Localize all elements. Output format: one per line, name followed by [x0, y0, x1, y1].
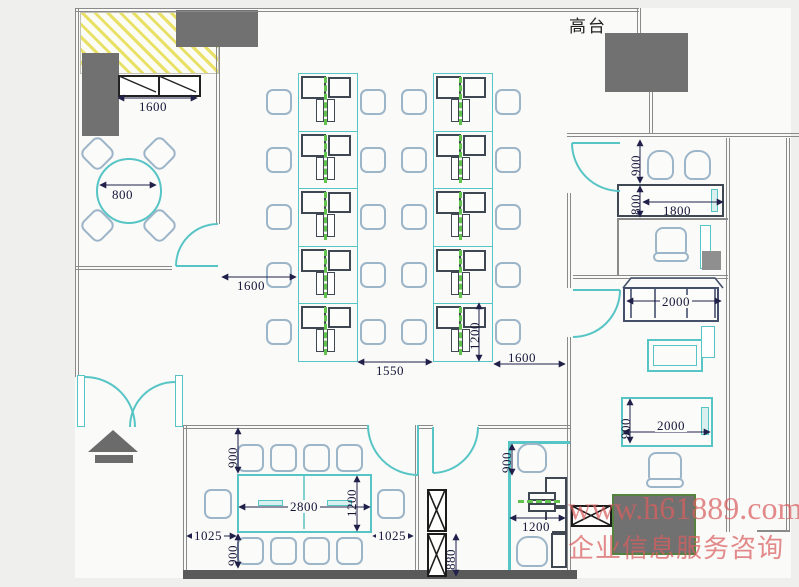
dim-workstation-depth: 1200: [468, 322, 481, 350]
floor-plan: 1600 800 1600 1550 1200 1600 900 800 180…: [0, 0, 799, 587]
monitor: [711, 189, 718, 212]
chair: [401, 147, 427, 173]
chair: [266, 89, 292, 115]
chair: [517, 443, 547, 473]
dim-column: 880: [444, 549, 457, 570]
chair: [360, 147, 386, 173]
chair: [266, 204, 292, 230]
chair: [237, 537, 264, 565]
dim-conf-bottom-chairs: 900: [226, 545, 239, 566]
chair: [495, 89, 521, 115]
dim-office1-desk-depth: 800: [629, 194, 642, 215]
wall-hall-bottom-b: [418, 425, 433, 429]
monitor-pair: [528, 503, 556, 512]
chair: [495, 147, 521, 173]
dim-office1-desk: 1800: [663, 204, 691, 217]
chair: [336, 444, 363, 472]
chair: [495, 262, 521, 288]
dim-small-office-chairs: 900: [500, 452, 513, 473]
dim-workstation-gap: 1550: [376, 364, 404, 377]
chair: [495, 319, 521, 345]
guest-chair: [684, 150, 711, 180]
wall-meeting-room-right: [216, 47, 220, 224]
monitor: [701, 407, 709, 435]
wall-right-inner: [726, 138, 730, 532]
window-mullion: [158, 77, 160, 95]
wall-hall-right-a: [567, 193, 571, 288]
workstation-column-1: [298, 73, 358, 362]
wall-shelf: [701, 326, 715, 358]
workstation-cluster: [434, 132, 492, 190]
wall-left: [75, 8, 79, 377]
workstation-cluster: [299, 189, 357, 247]
workstation-cluster: [299, 132, 357, 190]
wall-office1-bottom: [617, 218, 728, 220]
workstation-cluster: [434, 247, 492, 305]
chair: [495, 204, 521, 230]
dim-conf-table: 2800: [288, 500, 320, 513]
table-power-strip: [258, 500, 283, 506]
office-chair: [655, 227, 687, 258]
dim-exec-desk: 2000: [655, 419, 687, 432]
workstation-cluster: [299, 247, 357, 305]
wall-right-outer: [786, 138, 790, 532]
wall-hall-bottom-c: [478, 425, 570, 429]
chair: [401, 319, 427, 345]
small-desk: [551, 533, 567, 568]
dim-exec-desk-depth: 900: [619, 418, 632, 439]
chair: [360, 89, 386, 115]
wall-meeting-room-bottom: [75, 266, 172, 270]
chair: [303, 444, 330, 472]
workstation-column-2: [433, 73, 493, 362]
entrance-post-left: [77, 375, 85, 427]
dim-conf-top-chairs: 900: [226, 447, 239, 468]
office-chair: [648, 452, 682, 484]
wall-right-rooms-top: [567, 133, 799, 137]
chair: [336, 537, 363, 565]
coffee-table: [647, 339, 703, 372]
dim-conf-right: 1025: [376, 529, 408, 542]
guest-chair: [647, 150, 674, 180]
workstation-cluster: [434, 304, 492, 361]
wall-conf-right: [415, 425, 419, 578]
chair: [516, 536, 548, 567]
workstation-cluster: [299, 74, 357, 132]
column-block-top-left: [176, 10, 258, 47]
dim-workstation-right: 1600: [508, 351, 536, 364]
column-block-left: [82, 53, 119, 136]
wall-hall-bottom-a: [183, 425, 368, 429]
chair: [237, 444, 264, 472]
window-symbol: [118, 75, 201, 97]
wall-office1-left-stub: [617, 218, 619, 275]
chair: [266, 147, 292, 173]
dim-storage-window: 1600: [139, 100, 167, 113]
dim-small-office-desk: 1200: [520, 520, 552, 533]
chair: [204, 489, 232, 519]
chair: [401, 262, 427, 288]
workstation-cluster: [434, 74, 492, 132]
chair: [266, 319, 292, 345]
dim-round-table: 800: [112, 188, 133, 201]
dim-conf-table-depth: 1200: [345, 489, 358, 517]
wall-conf-left: [183, 425, 187, 578]
chair: [377, 489, 405, 519]
column-block-top-right: [605, 33, 688, 92]
workstation-cluster: [299, 304, 357, 361]
dim-sofa: 2000: [660, 295, 692, 308]
platform-label: 高台: [569, 12, 607, 37]
wall-hall-right-b: [567, 337, 571, 430]
chair: [266, 262, 292, 288]
wall-block-stem: [649, 92, 653, 133]
wall-top: [75, 8, 639, 12]
column-box: [427, 489, 447, 532]
entrance-post-right: [175, 375, 183, 427]
coffee-table-inner: [653, 345, 697, 366]
dim-meeting-room-door: 1600: [237, 279, 265, 292]
watermark-line1: www.h61889.com: [568, 490, 799, 527]
chair: [270, 537, 297, 565]
green-divider: [518, 500, 560, 503]
dim-office1-chairs: 900: [629, 155, 642, 176]
workstation-cluster: [434, 189, 492, 247]
wall-platform-step: [637, 8, 641, 33]
corner-cabinet-box: [702, 251, 721, 270]
watermark-line2: 企业信息服务咨询: [568, 528, 784, 565]
chair: [401, 89, 427, 115]
chair: [360, 204, 386, 230]
chair: [401, 204, 427, 230]
wall-lounge-top: [573, 275, 728, 279]
wall-bottom-thick: [183, 570, 577, 579]
chair: [270, 444, 297, 472]
chair: [360, 262, 386, 288]
chair: [360, 319, 386, 345]
chair: [303, 537, 330, 565]
dim-conf-left: 1025: [192, 529, 224, 542]
